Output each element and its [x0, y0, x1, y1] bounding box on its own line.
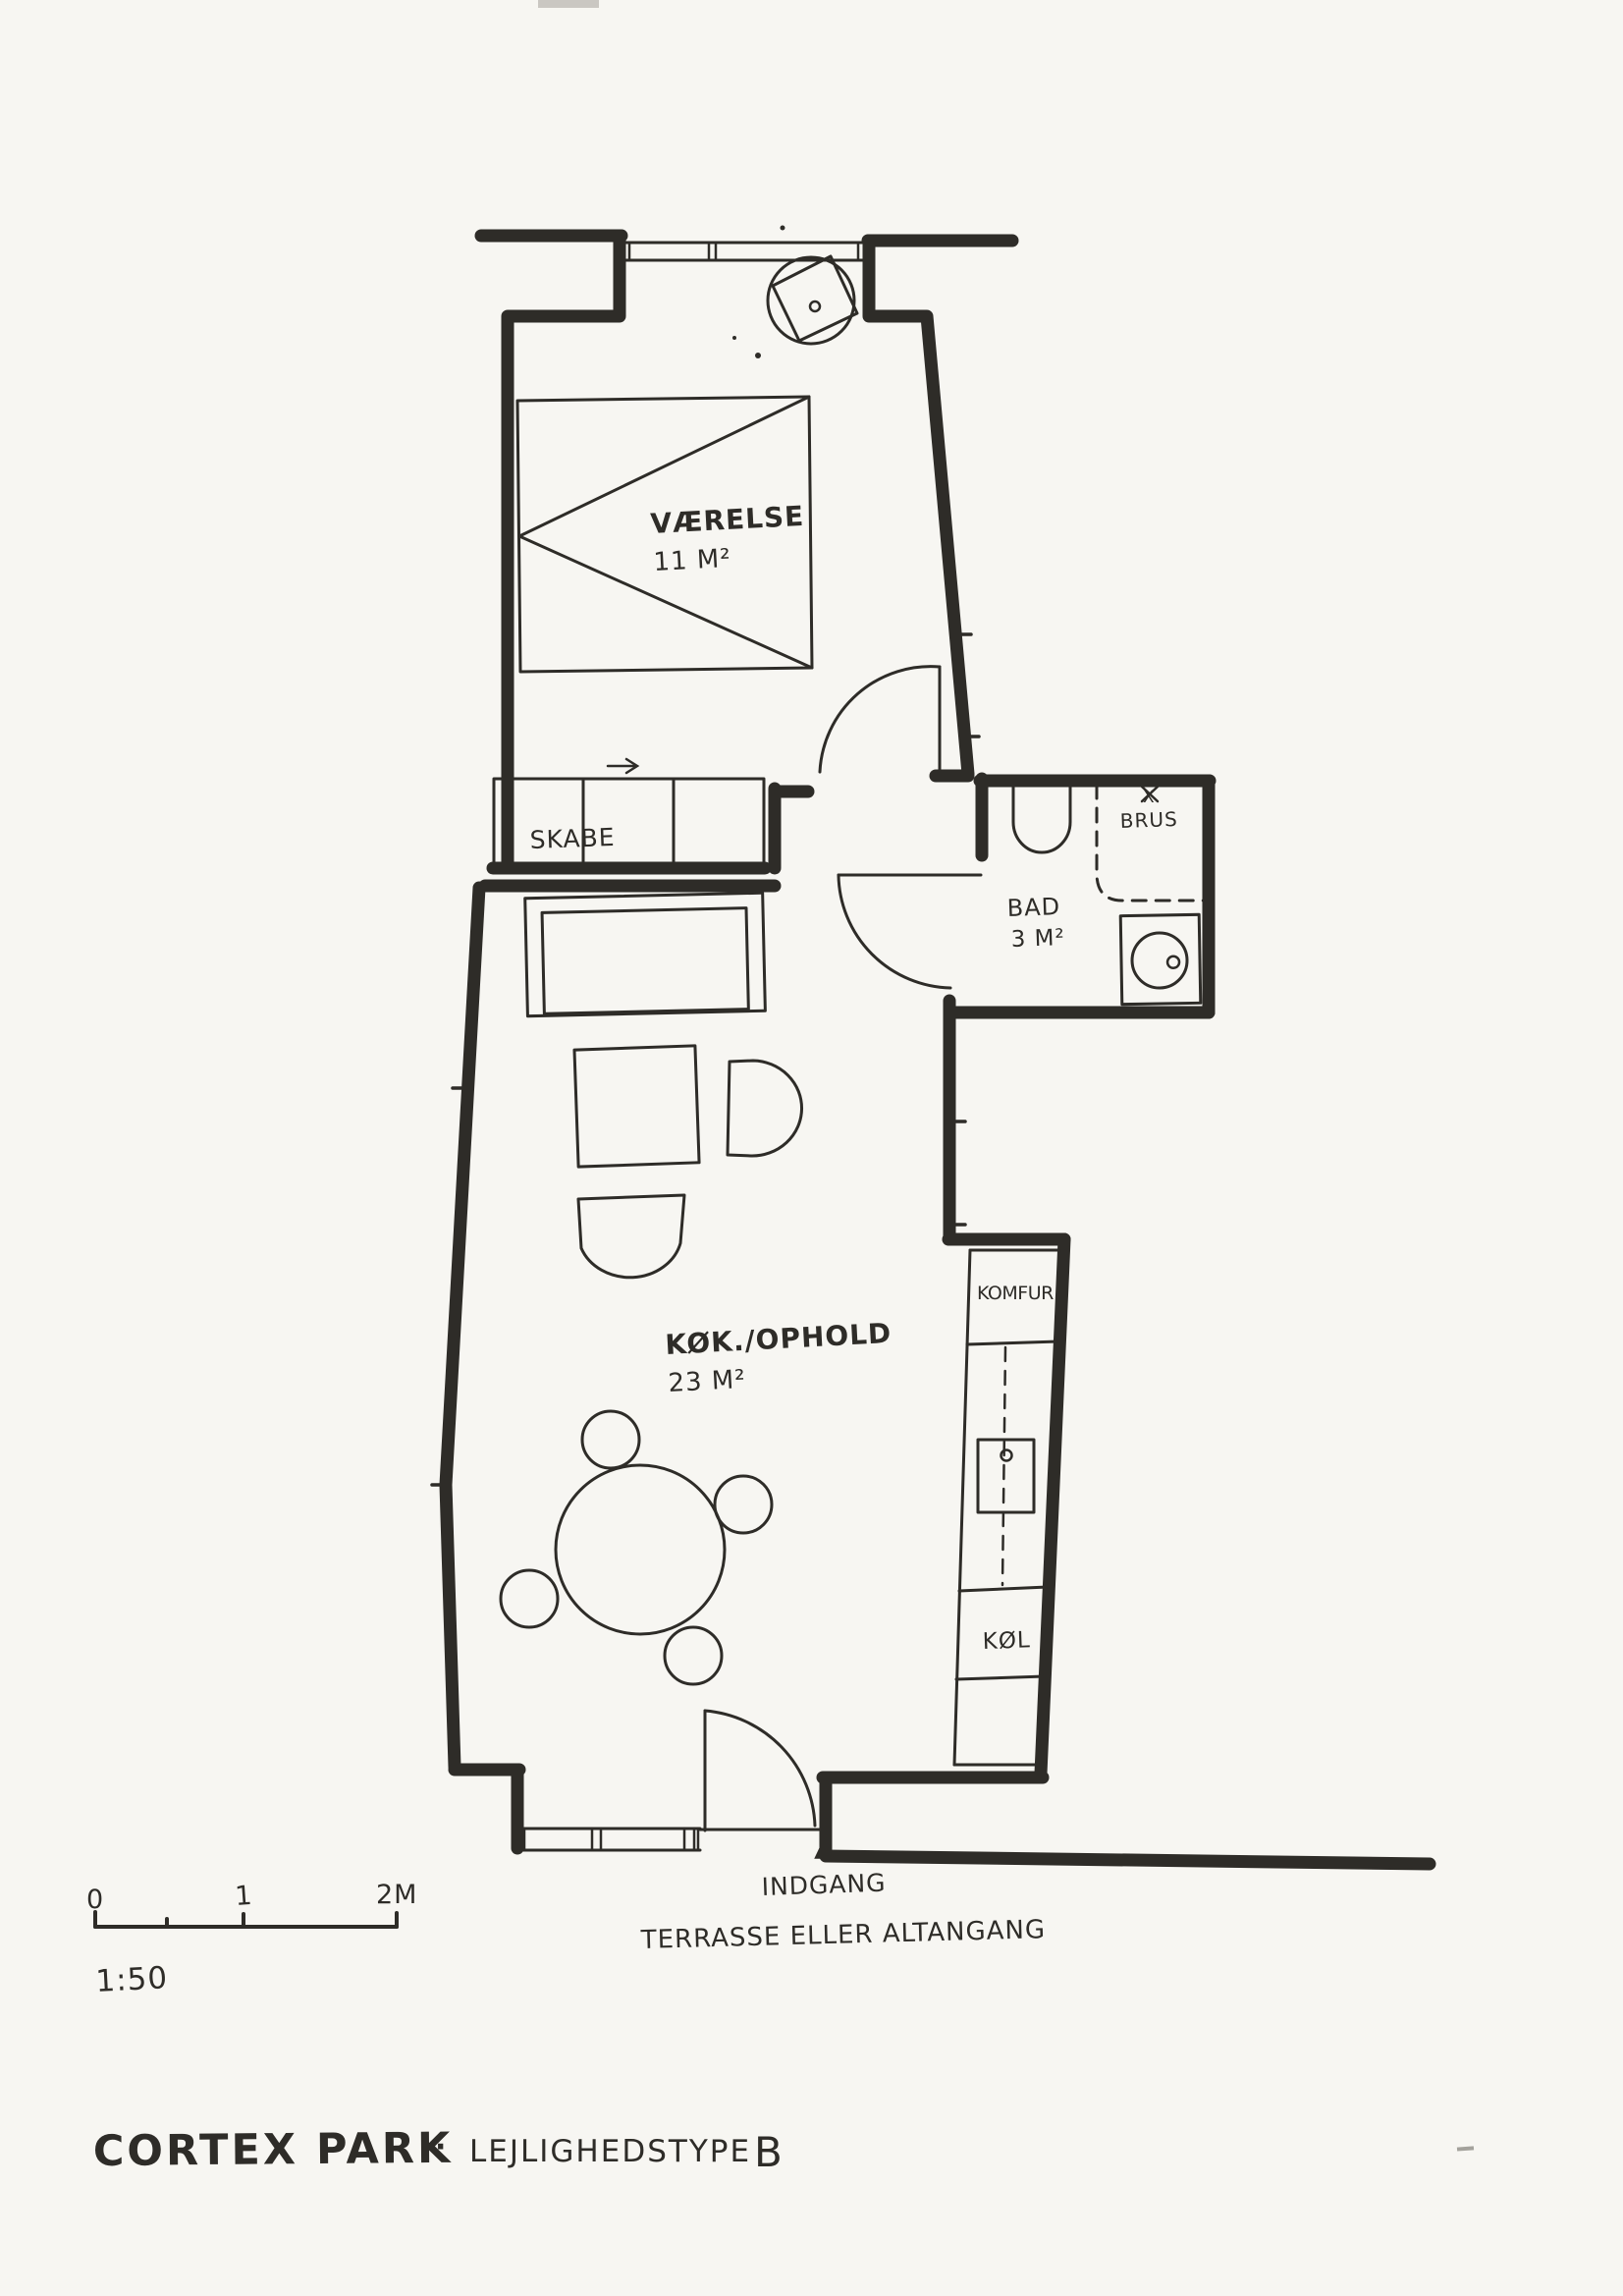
scale-bar: 0 1 2M 1:50: [86, 1880, 417, 1999]
room-labels: VÆRELSE 11 M² SKABE BAD 3 M² X BRUS KOMF…: [529, 500, 1178, 1655]
kitchen-sink: [978, 1440, 1034, 1512]
bedroom-furniture: [517, 226, 857, 673]
chair: [715, 1476, 772, 1533]
project-title: CORTEX PARK: [93, 2124, 454, 2176]
kitchen-living-label: KØK./OPHOLD: [665, 1317, 893, 1361]
entrance-annotations: INDGANG TERRASSE ELLER ALTANGANG: [639, 1869, 1046, 1955]
dining-table: [556, 1465, 725, 1634]
bathroom-label: BAD: [1006, 893, 1060, 922]
title-separator: ·: [435, 2130, 447, 2164]
scale-tick-1: 1: [234, 1881, 253, 1912]
sofa: [525, 893, 766, 1015]
shower-mark-label: X: [1143, 788, 1156, 807]
bedroom-door: [820, 667, 940, 774]
bedroom-area: 11 M²: [653, 544, 732, 577]
living-furniture: [501, 893, 802, 1684]
bedroom-label: VÆRELSE: [650, 500, 805, 540]
armchair-right: [728, 1061, 802, 1156]
dining-set: [501, 1411, 772, 1684]
plant: [732, 226, 857, 359]
kitchen-living-area: 23 M²: [668, 1365, 747, 1398]
side-table: [574, 1046, 699, 1167]
chair: [665, 1627, 722, 1684]
shower-label: BRUS: [1119, 807, 1178, 833]
scale-tick-0: 0: [86, 1885, 104, 1915]
armchair-bottom: [578, 1195, 684, 1278]
unit-type-label: LEJLIGHEDSTYPE: [469, 2134, 751, 2169]
scanned-floor-plan-page: 0 1 2M 1:50 VÆRELSE 11 M² SKABE BAD 3 M²…: [0, 0, 1623, 2296]
stove-label: KOMFUR: [977, 1283, 1054, 1304]
entrance-label: INDGANG: [761, 1869, 887, 1901]
wardrobe-label: SKABE: [529, 823, 616, 854]
title-block: CORTEX PARK · LEJLIGHEDSTYPE B: [93, 2124, 784, 2176]
chair: [582, 1411, 639, 1468]
bathroom-door: [839, 875, 981, 988]
sliding-arrow-icon: [608, 759, 637, 773]
entry-door: [705, 1711, 815, 1831]
living-window: [521, 1829, 823, 1850]
unit-type-letter: B: [754, 2128, 784, 2176]
bathroom-area: 3 M²: [1010, 925, 1065, 953]
toilet: [1013, 782, 1070, 852]
terrace-label: TERRASSE ELLER ALTANGANG: [639, 1915, 1046, 1955]
doors: [705, 667, 981, 1831]
bathroom-sink: [1120, 914, 1201, 1004]
scale-ratio: 1:50: [95, 1960, 169, 1999]
scale-tick-2m: 2M: [376, 1880, 417, 1910]
floor-plan: 0 1 2M 1:50 VÆRELSE 11 M² SKABE BAD 3 M²…: [0, 0, 1623, 2296]
chair: [501, 1570, 558, 1627]
fridge-label: KØL: [982, 1627, 1031, 1655]
